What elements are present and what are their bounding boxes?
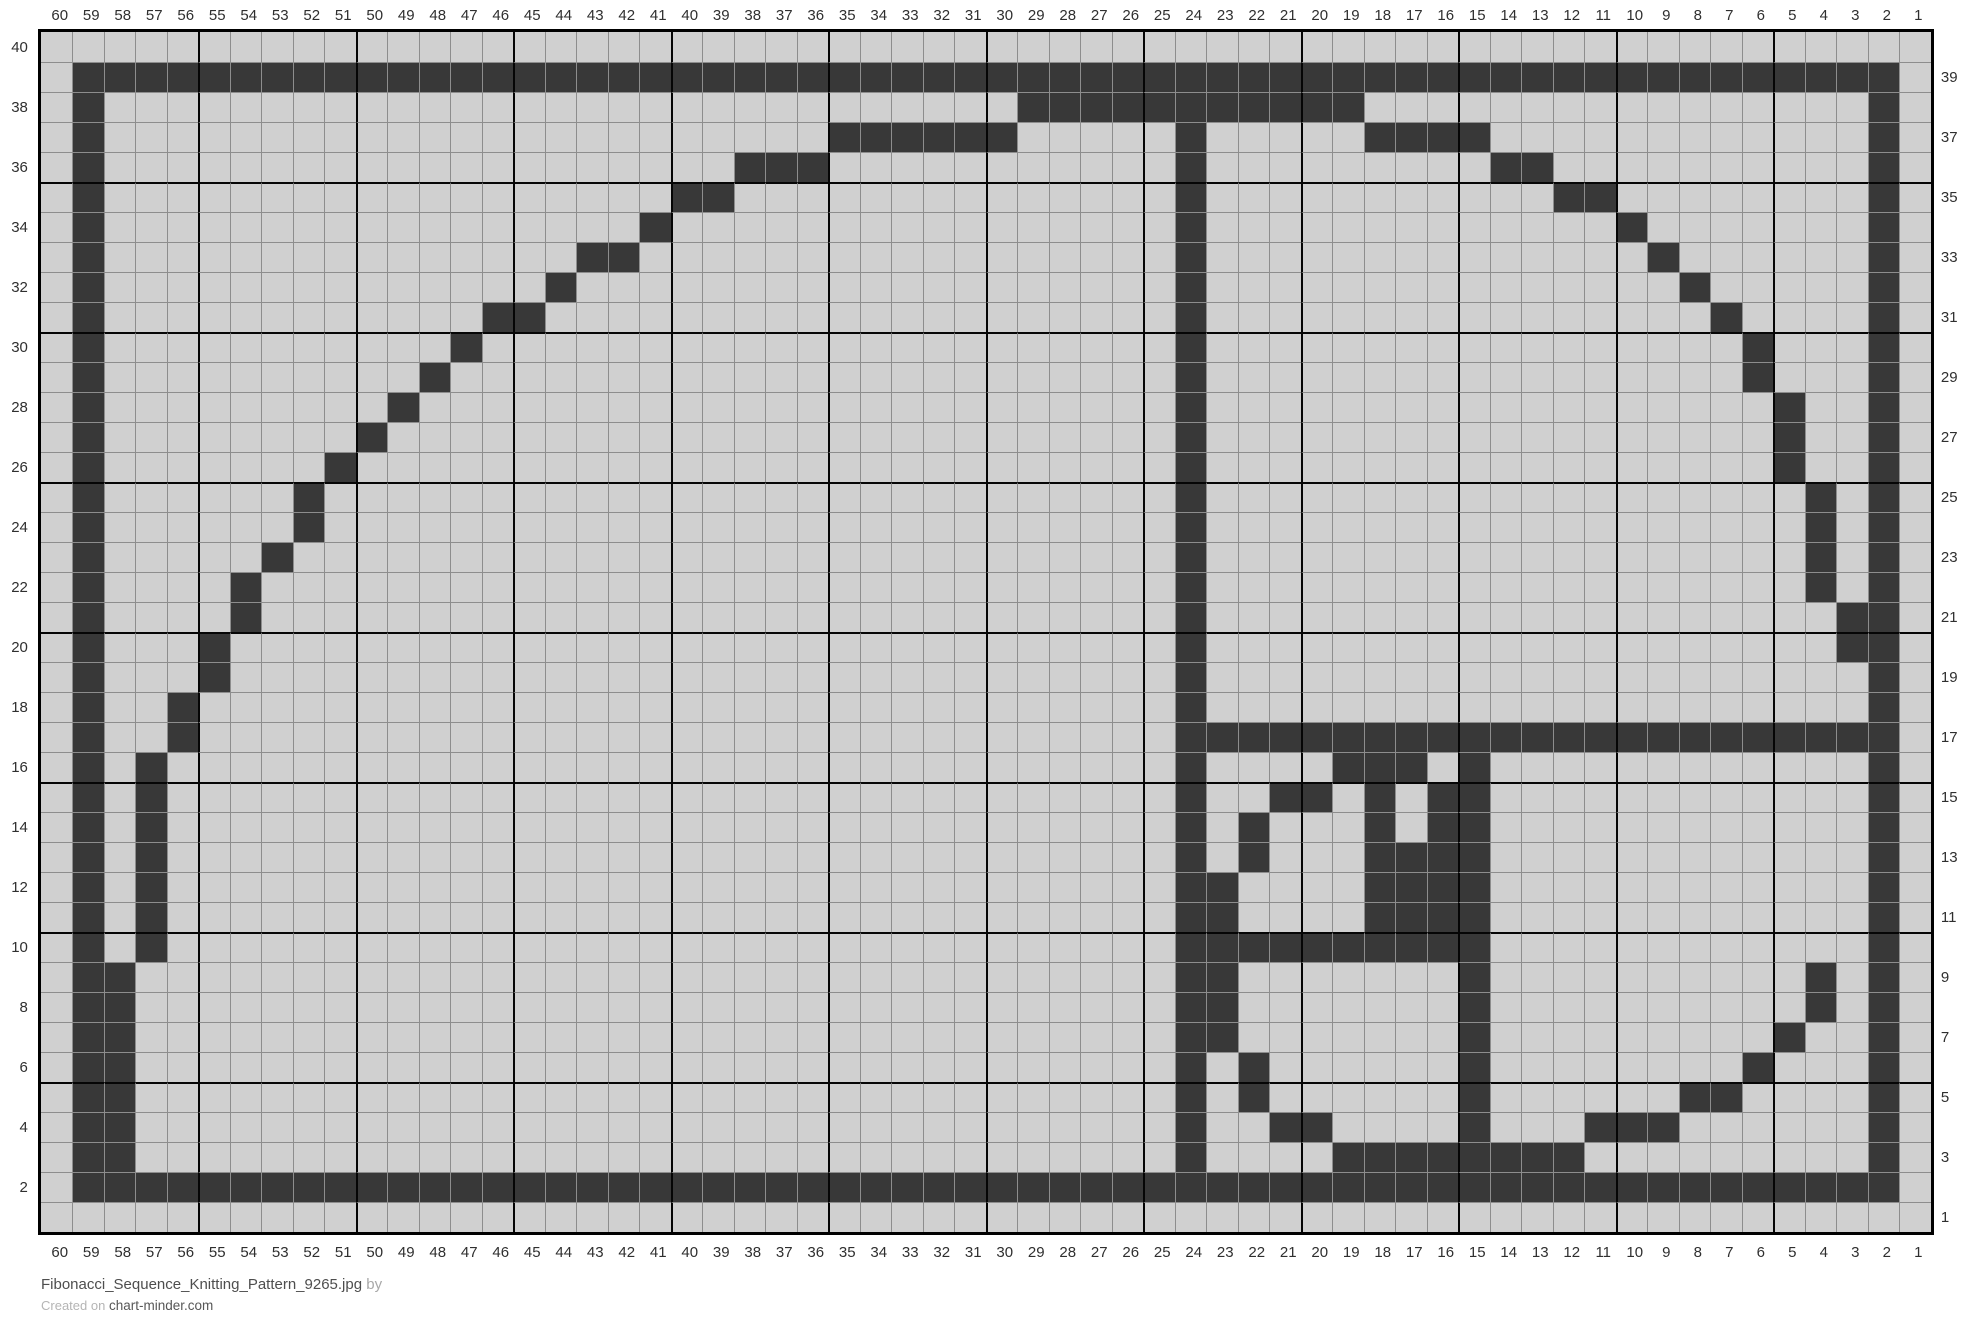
chart-cell xyxy=(104,722,136,752)
chart-cell xyxy=(1395,872,1427,902)
chart-cell xyxy=(1080,482,1112,512)
chart-cell xyxy=(1490,122,1522,152)
row-label: 26 xyxy=(0,452,38,482)
chart-cell xyxy=(1742,752,1774,782)
chart-cell xyxy=(671,122,703,152)
column-label: 40 xyxy=(674,1235,706,1269)
chart-cell xyxy=(1301,452,1333,482)
chart-cell xyxy=(608,1142,640,1172)
chart-cell xyxy=(324,422,356,452)
chart-cell xyxy=(1553,812,1585,842)
chart-cell xyxy=(1616,362,1648,392)
chart-cell xyxy=(1238,1022,1270,1052)
chart-cell xyxy=(576,902,608,932)
chart-cell xyxy=(1490,812,1522,842)
chart-cell xyxy=(1773,32,1805,62)
chart-cell xyxy=(1458,842,1490,872)
chart-cell xyxy=(293,782,325,812)
column-label: 50 xyxy=(359,2,391,29)
chart-cell xyxy=(230,212,262,242)
chart-cell xyxy=(1238,1112,1270,1142)
chart-cell xyxy=(1679,392,1711,422)
chart-cell xyxy=(135,92,167,122)
chart-cell xyxy=(1395,482,1427,512)
chart-cell xyxy=(482,662,514,692)
column-label: 33 xyxy=(895,2,927,29)
row-labels-left: 403836343230282624222018161412108642 xyxy=(0,29,38,1232)
chart-cell xyxy=(1049,1142,1081,1172)
chart-cell xyxy=(198,182,230,212)
column-label: 39 xyxy=(706,1235,738,1269)
chart-cell xyxy=(1868,302,1900,332)
chart-cell xyxy=(1521,362,1553,392)
chart-cell xyxy=(1868,242,1900,272)
chart-cell xyxy=(1080,692,1112,722)
chart-cell xyxy=(1742,1142,1774,1172)
chart-cell xyxy=(1364,392,1396,422)
chart-cell xyxy=(356,782,388,812)
chart-cell xyxy=(1364,692,1396,722)
chart-cell xyxy=(1332,1052,1364,1082)
chart-cell xyxy=(1112,1082,1144,1112)
chart-cell xyxy=(450,602,482,632)
chart-cell xyxy=(1584,1202,1616,1232)
chart-cell xyxy=(324,572,356,602)
chart-cell xyxy=(765,602,797,632)
chart-cell xyxy=(356,632,388,662)
chart-cell xyxy=(1679,362,1711,392)
chart-cell xyxy=(72,1202,104,1232)
chart-cell xyxy=(1805,782,1837,812)
chart-cell xyxy=(1679,722,1711,752)
chart-cell xyxy=(1301,1172,1333,1202)
chart-cell xyxy=(860,422,892,452)
chart-cell xyxy=(1017,1082,1049,1112)
chart-cell xyxy=(1616,422,1648,452)
row-label: 22 xyxy=(0,572,38,602)
chart-cell xyxy=(1049,902,1081,932)
chart-cell xyxy=(1836,392,1868,422)
chart-cell xyxy=(293,872,325,902)
chart-cell xyxy=(734,992,766,1022)
chart-cell xyxy=(1616,482,1648,512)
column-label: 43 xyxy=(580,2,612,29)
chart-cell xyxy=(1710,602,1742,632)
chart-cell xyxy=(1206,422,1238,452)
chart-cell xyxy=(482,692,514,722)
chart-cell xyxy=(734,212,766,242)
chart-cell xyxy=(1143,722,1175,752)
chart-cell xyxy=(1112,692,1144,722)
chart-cell xyxy=(104,1172,136,1202)
chart-cell xyxy=(1175,32,1207,62)
chart-cell xyxy=(1269,92,1301,122)
row-label xyxy=(0,542,38,572)
chart-cell xyxy=(1616,272,1648,302)
chart-cell xyxy=(1584,602,1616,632)
chart-cell xyxy=(1175,152,1207,182)
chart-cell xyxy=(1364,602,1396,632)
chart-cell xyxy=(828,602,860,632)
chart-cell xyxy=(104,1052,136,1082)
chart-cell xyxy=(293,152,325,182)
chart-cell xyxy=(608,1112,640,1142)
chart-cell xyxy=(198,572,230,602)
chart-cell xyxy=(450,722,482,752)
chart-cell xyxy=(1364,1142,1396,1172)
chart-cell xyxy=(1899,542,1931,572)
chart-cell xyxy=(419,1172,451,1202)
chart-cell xyxy=(1458,722,1490,752)
chart-cell xyxy=(1017,602,1049,632)
chart-cell xyxy=(1458,662,1490,692)
column-label: 18 xyxy=(1367,1235,1399,1269)
chart-cell xyxy=(1742,992,1774,1022)
chart-cell xyxy=(1742,32,1774,62)
chart-cell xyxy=(765,572,797,602)
chart-cell xyxy=(167,272,199,302)
chart-cell xyxy=(104,152,136,182)
chart-cell xyxy=(1710,152,1742,182)
column-label: 6 xyxy=(1745,1235,1777,1269)
chart-cell xyxy=(1206,1082,1238,1112)
chart-cell xyxy=(1868,512,1900,542)
chart-cell xyxy=(1427,932,1459,962)
chart-cell xyxy=(1332,152,1364,182)
chart-cell xyxy=(545,902,577,932)
chart-cell xyxy=(1427,842,1459,872)
chart-cell xyxy=(1521,92,1553,122)
chart-cell xyxy=(293,842,325,872)
row-label xyxy=(1934,452,1969,482)
chart-cell xyxy=(1836,272,1868,302)
chart-cell xyxy=(891,1172,923,1202)
chart-cell xyxy=(1868,872,1900,902)
chart-cell xyxy=(986,1022,1018,1052)
chart-cell xyxy=(1175,602,1207,632)
chart-cell xyxy=(545,302,577,332)
chart-cell xyxy=(356,212,388,242)
chart-cell xyxy=(419,212,451,242)
chart-cell xyxy=(1175,842,1207,872)
chart-cell xyxy=(450,932,482,962)
chart-cell xyxy=(639,692,671,722)
chart-cell xyxy=(1616,812,1648,842)
row-label: 31 xyxy=(1934,302,1969,332)
chart-cell xyxy=(1868,182,1900,212)
chart-cell xyxy=(1206,1172,1238,1202)
row-label: 4 xyxy=(0,1112,38,1142)
chart-cell xyxy=(1647,692,1679,722)
chart-cell xyxy=(1490,902,1522,932)
chart-cell xyxy=(1238,932,1270,962)
chart-cell xyxy=(1049,542,1081,572)
chart-cell xyxy=(1647,872,1679,902)
chart-cell xyxy=(293,602,325,632)
chart-cell xyxy=(891,452,923,482)
column-label: 3 xyxy=(1840,1235,1872,1269)
chart-cell xyxy=(167,362,199,392)
chart-cell xyxy=(450,242,482,272)
chart-cell xyxy=(1238,572,1270,602)
chart-cell xyxy=(324,122,356,152)
chart-cell xyxy=(1143,212,1175,242)
chart-cell xyxy=(1553,872,1585,902)
chart-cell xyxy=(702,452,734,482)
chart-cell xyxy=(1710,692,1742,722)
column-label: 42 xyxy=(611,1235,643,1269)
chart-cell xyxy=(1647,1202,1679,1232)
chart-cell xyxy=(639,1142,671,1172)
chart-cell xyxy=(261,92,293,122)
chart-cell xyxy=(1679,452,1711,482)
chart-cell xyxy=(986,662,1018,692)
chart-cell xyxy=(954,152,986,182)
chart-cell xyxy=(1584,272,1616,302)
chart-cell xyxy=(1679,482,1711,512)
chart-cell xyxy=(1049,482,1081,512)
chart-cell xyxy=(419,92,451,122)
chart-cell xyxy=(230,182,262,212)
chart-cell xyxy=(860,1172,892,1202)
chart-cell xyxy=(545,212,577,242)
chart-cell xyxy=(860,872,892,902)
chart-cell xyxy=(1710,962,1742,992)
chart-cell xyxy=(1395,962,1427,992)
chart-cell xyxy=(639,542,671,572)
column-label: 3 xyxy=(1840,2,1872,29)
chart-cell xyxy=(387,332,419,362)
chart-cell xyxy=(104,992,136,1022)
chart-cell xyxy=(576,62,608,92)
chart-cell xyxy=(1395,422,1427,452)
chart-cell xyxy=(1710,32,1742,62)
chart-cell xyxy=(702,242,734,272)
chart-cell xyxy=(1332,1112,1364,1142)
chart-cell xyxy=(1742,272,1774,302)
chart-cell xyxy=(671,1112,703,1142)
chart-cell xyxy=(639,1082,671,1112)
chart-cell xyxy=(639,32,671,62)
chart-cell xyxy=(576,1022,608,1052)
column-label: 19 xyxy=(1336,1235,1368,1269)
chart-cell xyxy=(261,122,293,152)
chart-cell xyxy=(1332,992,1364,1022)
chart-cell xyxy=(1899,692,1931,722)
chart-cell xyxy=(419,602,451,632)
chart-cell xyxy=(1836,452,1868,482)
column-label: 18 xyxy=(1367,2,1399,29)
column-label: 55 xyxy=(202,2,234,29)
chart-cell xyxy=(797,212,829,242)
chart-cell xyxy=(293,662,325,692)
chart-cell xyxy=(1710,752,1742,782)
chart-cell xyxy=(1017,332,1049,362)
chart-cell xyxy=(1710,1082,1742,1112)
chart-cell xyxy=(261,482,293,512)
chart-cell xyxy=(167,932,199,962)
chart-cell xyxy=(1490,692,1522,722)
chart-cell xyxy=(1553,32,1585,62)
chart-cell xyxy=(230,92,262,122)
chart-cell xyxy=(1458,1202,1490,1232)
chart-cell xyxy=(104,662,136,692)
chart-cell xyxy=(1049,602,1081,632)
chart-cell xyxy=(1773,542,1805,572)
chart-cell xyxy=(356,482,388,512)
chart-cell xyxy=(1269,992,1301,1022)
chart-cell xyxy=(450,512,482,542)
chart-cell xyxy=(198,602,230,632)
chart-cell xyxy=(1080,332,1112,362)
chart-cell xyxy=(608,632,640,662)
chart-cell xyxy=(41,722,73,752)
chart-cell xyxy=(1521,482,1553,512)
chart-cell xyxy=(230,1172,262,1202)
chart-cell xyxy=(1553,1052,1585,1082)
chart-cell xyxy=(1301,92,1333,122)
chart-cell xyxy=(324,752,356,782)
chart-cell xyxy=(1458,32,1490,62)
chart-cell xyxy=(1710,482,1742,512)
chart-cell xyxy=(1584,542,1616,572)
chart-cell xyxy=(1238,1142,1270,1172)
chart-cell xyxy=(1206,632,1238,662)
chart-cell xyxy=(1521,512,1553,542)
chart-cell xyxy=(639,452,671,482)
chart-cell xyxy=(1332,1142,1364,1172)
chart-cell xyxy=(1742,512,1774,542)
chart-cell xyxy=(1773,1142,1805,1172)
chart-cell xyxy=(1175,782,1207,812)
chart-cell xyxy=(104,512,136,542)
chart-cell xyxy=(1584,32,1616,62)
chart-cell xyxy=(1742,242,1774,272)
chart-cell xyxy=(1490,602,1522,632)
chart-cell xyxy=(1364,752,1396,782)
chart-cell xyxy=(387,902,419,932)
chart-cell xyxy=(1427,1082,1459,1112)
chart-cell xyxy=(1553,122,1585,152)
chart-cell xyxy=(230,572,262,602)
chart-cell xyxy=(1206,62,1238,92)
row-label: 5 xyxy=(1934,1082,1969,1112)
row-label: 6 xyxy=(0,1052,38,1082)
chart-cell xyxy=(702,932,734,962)
chart-cell xyxy=(230,122,262,152)
chart-cell xyxy=(1238,272,1270,302)
chart-cell xyxy=(198,422,230,452)
chart-cell xyxy=(1742,452,1774,482)
chart-cell xyxy=(765,152,797,182)
column-label: 54 xyxy=(233,1235,265,1269)
chart-cell xyxy=(828,842,860,872)
chart-cell xyxy=(324,962,356,992)
chart-cell xyxy=(1742,932,1774,962)
chart-cell xyxy=(167,692,199,722)
chart-cell xyxy=(891,362,923,392)
chart-cell xyxy=(923,32,955,62)
chart-cell xyxy=(1112,272,1144,302)
chart-cell xyxy=(324,1052,356,1082)
chart-cell xyxy=(608,1022,640,1052)
chart-cell xyxy=(671,1022,703,1052)
chart-cell xyxy=(1049,62,1081,92)
chart-cell xyxy=(765,1022,797,1052)
chart-cell xyxy=(765,992,797,1022)
chart-cell xyxy=(1584,872,1616,902)
chart-cell xyxy=(1805,152,1837,182)
chart-cell xyxy=(1017,362,1049,392)
chart-cell xyxy=(1364,272,1396,302)
chart-cell xyxy=(41,32,73,62)
chart-cell xyxy=(1175,1172,1207,1202)
chart-cell xyxy=(482,242,514,272)
chart-cell xyxy=(765,302,797,332)
chart-cell xyxy=(1553,692,1585,722)
row-label xyxy=(1934,1112,1969,1142)
chart-cell xyxy=(1458,872,1490,902)
chart-cell xyxy=(765,662,797,692)
chart-cell xyxy=(356,1052,388,1082)
chart-cell xyxy=(72,962,104,992)
chart-cell xyxy=(1836,782,1868,812)
chart-cell xyxy=(104,572,136,602)
chart-cell xyxy=(356,302,388,332)
chart-cell xyxy=(513,392,545,422)
chart-cell xyxy=(1175,632,1207,662)
chart-cell xyxy=(1521,1142,1553,1172)
chart-cell xyxy=(41,632,73,662)
chart-cell xyxy=(671,992,703,1022)
chart-cell xyxy=(1427,302,1459,332)
row-label xyxy=(0,482,38,512)
chart-cell xyxy=(387,1112,419,1142)
chart-cell xyxy=(1175,992,1207,1022)
chart-cell xyxy=(1584,1052,1616,1082)
chart-cell xyxy=(1584,992,1616,1022)
chart-cell xyxy=(1647,482,1679,512)
chart-cell xyxy=(891,782,923,812)
chart-cell xyxy=(576,482,608,512)
chart-cell xyxy=(765,212,797,242)
chart-cell xyxy=(1521,572,1553,602)
column-label: 55 xyxy=(202,1235,234,1269)
chart-cell xyxy=(1049,962,1081,992)
chart-cell xyxy=(576,662,608,692)
chart-cell xyxy=(1773,152,1805,182)
chart-cell xyxy=(167,242,199,272)
chart-cell xyxy=(1773,812,1805,842)
chart-cell xyxy=(482,62,514,92)
chart-cell xyxy=(1773,662,1805,692)
chart-cell xyxy=(1521,932,1553,962)
chart-cell xyxy=(167,482,199,512)
chart-cell xyxy=(860,932,892,962)
chart-cell xyxy=(1773,962,1805,992)
chart-cell xyxy=(860,962,892,992)
chart-cell xyxy=(513,812,545,842)
chart-cell xyxy=(198,992,230,1022)
chart-cell xyxy=(702,152,734,182)
chart-cell xyxy=(1238,242,1270,272)
chart-cell xyxy=(1773,422,1805,452)
chart-cell xyxy=(1112,1022,1144,1052)
chart-cell xyxy=(608,452,640,482)
chart-cell xyxy=(1175,1142,1207,1172)
row-label xyxy=(1934,272,1969,302)
chart-cell xyxy=(576,182,608,212)
